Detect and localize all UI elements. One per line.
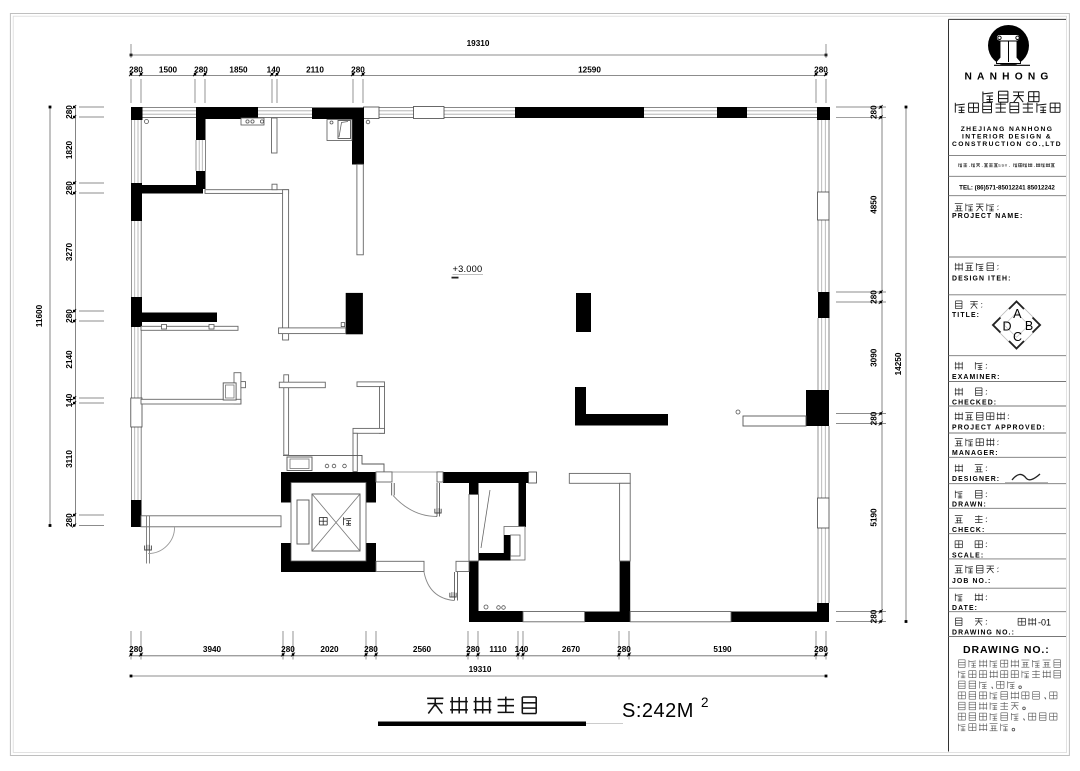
svg-text:1500: 1500	[159, 65, 178, 74]
svg-text:DATE:: DATE:	[952, 605, 978, 612]
svg-text:1820: 1820	[65, 140, 74, 159]
svg-text:+3.000: +3.000	[453, 264, 483, 274]
svg-text:CHECKED:: CHECKED:	[952, 400, 997, 407]
svg-text:280: 280	[65, 105, 74, 119]
svg-text:A: A	[1013, 307, 1022, 321]
svg-text:280: 280	[814, 65, 828, 74]
svg-text:NANHONG: NANHONG	[964, 72, 1053, 83]
svg-text:280: 280	[466, 645, 480, 654]
svg-text:DRAWN:: DRAWN:	[952, 502, 987, 509]
svg-text:14250: 14250	[894, 352, 903, 375]
svg-text:TITLE:: TITLE:	[952, 312, 980, 319]
svg-text:280: 280	[281, 645, 295, 654]
svg-text:SCALE:: SCALE:	[952, 553, 984, 560]
svg-text:280: 280	[364, 645, 378, 654]
svg-text:140: 140	[267, 65, 281, 74]
svg-text:PROJECT APPROVED:: PROJECT APPROVED:	[952, 425, 1046, 432]
svg-text:3090: 3090	[870, 348, 879, 367]
svg-text:S:242M: S:242M	[622, 700, 694, 722]
svg-text:PROJECT NAME:: PROJECT NAME:	[952, 213, 1023, 220]
svg-text:DESIGN ITEH:: DESIGN ITEH:	[952, 276, 1012, 283]
svg-text:1110: 1110	[489, 645, 507, 654]
svg-text:2110: 2110	[306, 65, 324, 74]
svg-text:280: 280	[65, 309, 74, 323]
svg-text:2: 2	[701, 695, 709, 710]
svg-text:CONSTRUCTION CO.,LTD: CONSTRUCTION CO.,LTD	[952, 141, 1062, 148]
svg-text:19310: 19310	[467, 39, 490, 48]
svg-text:280: 280	[870, 290, 879, 304]
svg-text:TEL: (86)571-85012241 85012242: TEL: (86)571-85012241 85012242	[959, 185, 1055, 192]
svg-text:280: 280	[129, 645, 143, 654]
svg-text:280: 280	[870, 411, 879, 425]
svg-text:B: B	[1025, 319, 1033, 333]
svg-text:2140: 2140	[65, 350, 74, 369]
svg-text:280: 280	[65, 181, 74, 195]
svg-text:5190: 5190	[713, 645, 732, 654]
svg-text:D: D	[1002, 320, 1011, 334]
svg-text:280: 280	[617, 645, 631, 654]
svg-text:JOB NO.:: JOB NO.:	[952, 578, 991, 585]
svg-text:DRAWING NO.:: DRAWING NO.:	[963, 644, 1050, 656]
svg-text:EXAMINER:: EXAMINER:	[952, 374, 1001, 381]
svg-text:280: 280	[814, 645, 828, 654]
svg-text:280: 280	[129, 65, 143, 74]
svg-text:280: 280	[65, 513, 74, 527]
svg-text:-01: -01	[1038, 618, 1051, 628]
svg-text:ZHEJIANG NANHONG: ZHEJIANG NANHONG	[961, 126, 1054, 133]
svg-text:280: 280	[194, 65, 208, 74]
svg-text:2020: 2020	[320, 645, 339, 654]
svg-text:140: 140	[515, 645, 529, 654]
svg-text:2670: 2670	[562, 645, 581, 654]
svg-text:280: 280	[351, 65, 365, 74]
svg-text:280: 280	[870, 105, 879, 119]
svg-text:12590: 12590	[578, 65, 601, 74]
svg-text:3110: 3110	[65, 450, 74, 468]
svg-text:3940: 3940	[203, 645, 222, 654]
svg-text:4850: 4850	[870, 195, 879, 214]
svg-text:CHECK:: CHECK:	[952, 527, 985, 534]
svg-text:2560: 2560	[413, 645, 432, 654]
svg-text:DRAWING NO.:: DRAWING NO.:	[952, 630, 1015, 637]
svg-text:INTERIOR DESIGN &: INTERIOR DESIGN &	[962, 134, 1052, 141]
svg-text:MANAGER:: MANAGER:	[952, 450, 999, 457]
svg-text:1850: 1850	[229, 65, 248, 74]
svg-text:3270: 3270	[65, 242, 74, 261]
svg-text:280: 280	[870, 609, 879, 623]
svg-text:19310: 19310	[469, 665, 492, 674]
svg-text:DESIGNER:: DESIGNER:	[952, 476, 1000, 483]
svg-text:C: C	[1013, 330, 1022, 344]
svg-text:11600: 11600	[35, 304, 44, 327]
svg-text:140: 140	[65, 393, 74, 407]
svg-text:5190: 5190	[870, 508, 879, 527]
